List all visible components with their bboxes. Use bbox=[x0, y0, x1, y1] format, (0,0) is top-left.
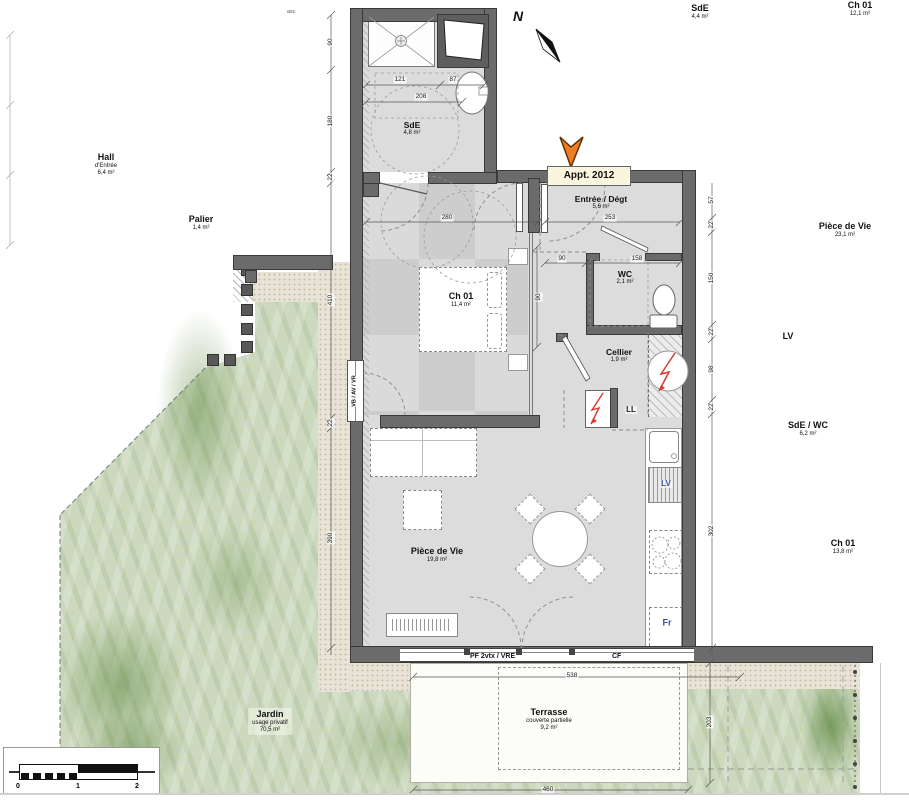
room-name: SdE / WC bbox=[788, 420, 828, 431]
room-area: 1,9 m² bbox=[606, 357, 632, 364]
room-area: 70,5 m² bbox=[252, 727, 288, 734]
sink-drain bbox=[672, 454, 677, 459]
room-label-ch01: Ch 01 11,4 m² bbox=[449, 291, 474, 309]
room-label-cellier: Cellier 1,9 m² bbox=[606, 347, 632, 364]
dim-label: 280 bbox=[441, 215, 454, 222]
duct-access-panel bbox=[444, 20, 484, 60]
french-door-arc bbox=[522, 597, 573, 648]
dim-label: 253 bbox=[604, 215, 617, 222]
room-area: 12,1 m² bbox=[848, 11, 873, 18]
room-label-piece-de-vie: Pièce de Vie 19,8 m² bbox=[411, 546, 463, 564]
room-label-terrasse: Terrasse couverte partielle 9,2 m² bbox=[526, 707, 572, 732]
neighbor-label-sdewc: SdE / WC 6,2 m² bbox=[788, 420, 828, 438]
plan-linework bbox=[0, 0, 909, 800]
scale-bar-tick bbox=[57, 773, 65, 779]
garden-fence-line bbox=[60, 368, 205, 515]
room-area: 1,4 m² bbox=[189, 225, 214, 232]
room-name: Pièce de Vie bbox=[411, 546, 463, 557]
sde-door-leaf bbox=[380, 183, 427, 194]
scale-label-1: 1 bbox=[76, 783, 80, 790]
bottom-margin bbox=[0, 795, 909, 800]
neighbor-label-ch01-right: Ch 01 13,8 m² bbox=[831, 538, 856, 556]
dimension-lines bbox=[327, 11, 744, 794]
room-name: Entrée / Dégt bbox=[575, 194, 627, 204]
room-sub: couverte partielle bbox=[526, 718, 572, 725]
faint-dimension-chain bbox=[6, 31, 14, 249]
neighbor-label-sde: SdE 4,4 m² bbox=[691, 3, 709, 21]
apartment-marker-label[interactable]: Appt. 2012 bbox=[547, 166, 631, 186]
room-area: 6,2 m² bbox=[788, 431, 828, 438]
room-area: 11,4 m² bbox=[449, 302, 474, 309]
room-name: WC bbox=[616, 269, 633, 279]
dim-label: 90 bbox=[328, 37, 335, 46]
room-label-wc: WC 2,1 m² bbox=[616, 269, 633, 286]
scale-label-2: 2 bbox=[135, 783, 139, 790]
living-door-arc bbox=[363, 373, 405, 415]
room-label-sde: SdE 4,8 m² bbox=[403, 120, 420, 137]
dim-label: 410 bbox=[328, 294, 335, 307]
room-area: 9,2 m² bbox=[526, 725, 572, 732]
asc-label: asc bbox=[287, 9, 296, 15]
north-letter: N bbox=[513, 8, 523, 24]
cooktop-burners bbox=[652, 537, 681, 569]
fridge-label: Fr bbox=[662, 619, 673, 628]
scale-bar-tick bbox=[45, 773, 53, 779]
toilet-bowl bbox=[653, 285, 675, 315]
neighbor-label-lv: LV bbox=[783, 331, 794, 342]
room-area: 4,8 m² bbox=[403, 130, 420, 137]
bedroom-door-arc bbox=[474, 183, 522, 231]
toilet-tank bbox=[650, 315, 677, 328]
sde-door-arc bbox=[380, 183, 428, 231]
dim-label: 98 bbox=[709, 364, 716, 373]
dim-label: 57 bbox=[709, 195, 716, 204]
dim-label: 538 bbox=[566, 673, 579, 680]
scale-bar-tick bbox=[21, 773, 29, 779]
neighbor-label-piece-de-vie: Pièce de Vie 23,1 m² bbox=[819, 221, 871, 239]
dim-label: 208 bbox=[415, 94, 428, 101]
room-name: Terrasse bbox=[526, 707, 572, 718]
room-name: Jardin bbox=[252, 709, 288, 720]
dim-label: 22 bbox=[328, 418, 335, 427]
dim-label: 87 bbox=[448, 77, 457, 84]
room-name: Cellier bbox=[606, 347, 632, 357]
room-area: 23,1 m² bbox=[819, 232, 871, 239]
scale-bar-box: 0 1 2 bbox=[3, 747, 160, 794]
room-area: 13,8 m² bbox=[831, 549, 856, 556]
room-sub: d'Entrée bbox=[95, 163, 117, 170]
dim-label: 180 bbox=[328, 115, 335, 128]
scale-bar-solid bbox=[78, 765, 137, 773]
dim-label: 390 bbox=[328, 532, 335, 545]
dim-label: 22 bbox=[709, 327, 716, 336]
room-area: 2,1 m² bbox=[616, 279, 633, 286]
dim-label: 158 bbox=[631, 256, 644, 263]
water-heater bbox=[648, 351, 688, 391]
room-area: 5,6 m² bbox=[575, 204, 627, 211]
washing-machine-label: LL bbox=[625, 406, 637, 414]
room-name: Ch 01 bbox=[848, 0, 873, 11]
scale-bar-tick bbox=[33, 773, 41, 779]
dim-label: 302 bbox=[709, 525, 716, 538]
dim-label: 203 bbox=[707, 716, 714, 729]
room-area: 6,4 m² bbox=[95, 170, 117, 177]
room-name: LV bbox=[783, 331, 794, 342]
dim-label: 22 bbox=[328, 172, 335, 181]
neighbor-label-ch01-top: Ch 01 12,1 m² bbox=[848, 0, 873, 18]
dishwasher-label: LV bbox=[660, 480, 672, 488]
floorplan-canvas: { "plan": { "marker_label": "Appt. 2012"… bbox=[0, 0, 909, 800]
room-area: 19,8 m² bbox=[411, 557, 463, 564]
wc-door-leaf bbox=[601, 226, 648, 252]
apartment-marker-arrow[interactable] bbox=[560, 137, 583, 167]
room-name: Hall bbox=[95, 152, 117, 163]
neighbor-label-hall: Hall d'Entrée 6,4 m² bbox=[95, 152, 117, 177]
dim-label: 121 bbox=[394, 77, 407, 84]
room-area: 4,4 m² bbox=[691, 14, 709, 21]
entry-door-arc bbox=[548, 184, 605, 241]
north-compass-needle bbox=[536, 29, 560, 62]
dim-label: 22 bbox=[709, 402, 716, 411]
room-name: SdE bbox=[691, 3, 709, 14]
dim-label: 90 bbox=[536, 292, 543, 301]
room-name: SdE bbox=[403, 120, 420, 130]
room-label-entree: Entrée / Dégt 5,6 m² bbox=[575, 194, 627, 211]
cellier-door-leaf bbox=[562, 336, 590, 381]
neighbor-label-palier: Palier 1,4 m² bbox=[189, 214, 214, 232]
dim-label: 150 bbox=[709, 272, 716, 285]
scale-bar-tick bbox=[69, 773, 77, 779]
room-name: Palier bbox=[189, 214, 214, 225]
room-label-jardin: Jardin usage privatif 70,5 m² bbox=[248, 708, 292, 735]
dim-label: 90 bbox=[557, 256, 566, 263]
margin-rule bbox=[880, 663, 881, 793]
room-name: Ch 01 bbox=[831, 538, 856, 549]
room-name: Ch 01 bbox=[449, 291, 474, 302]
french-door-arc bbox=[470, 597, 521, 648]
room-sub: usage privatif bbox=[252, 720, 288, 727]
room-name: Pièce de Vie bbox=[819, 221, 871, 232]
scale-label-0: 0 bbox=[16, 783, 20, 790]
dim-label: 22 bbox=[709, 220, 716, 229]
